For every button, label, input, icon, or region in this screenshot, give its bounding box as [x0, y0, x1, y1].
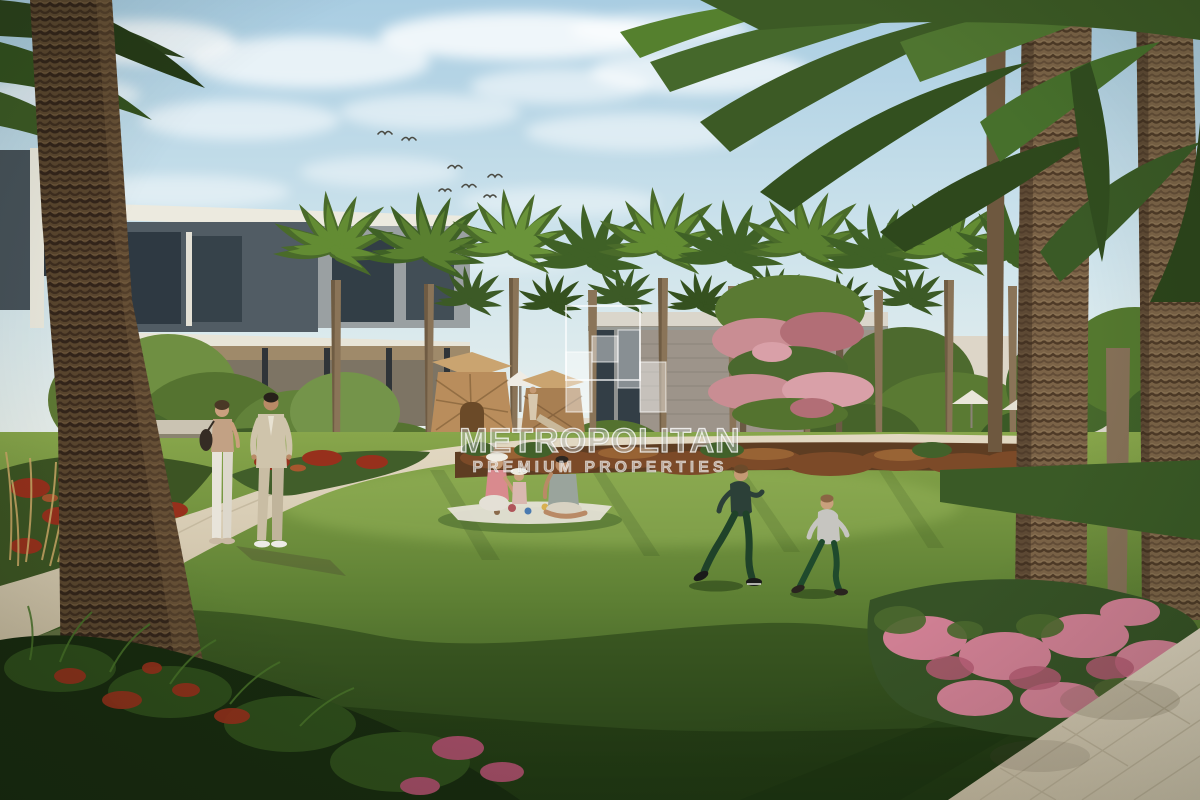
- picnic-toddler: [511, 468, 528, 504]
- property-render-image: METROPOLITAN PREMIUM PROPERTIES: [0, 0, 1200, 800]
